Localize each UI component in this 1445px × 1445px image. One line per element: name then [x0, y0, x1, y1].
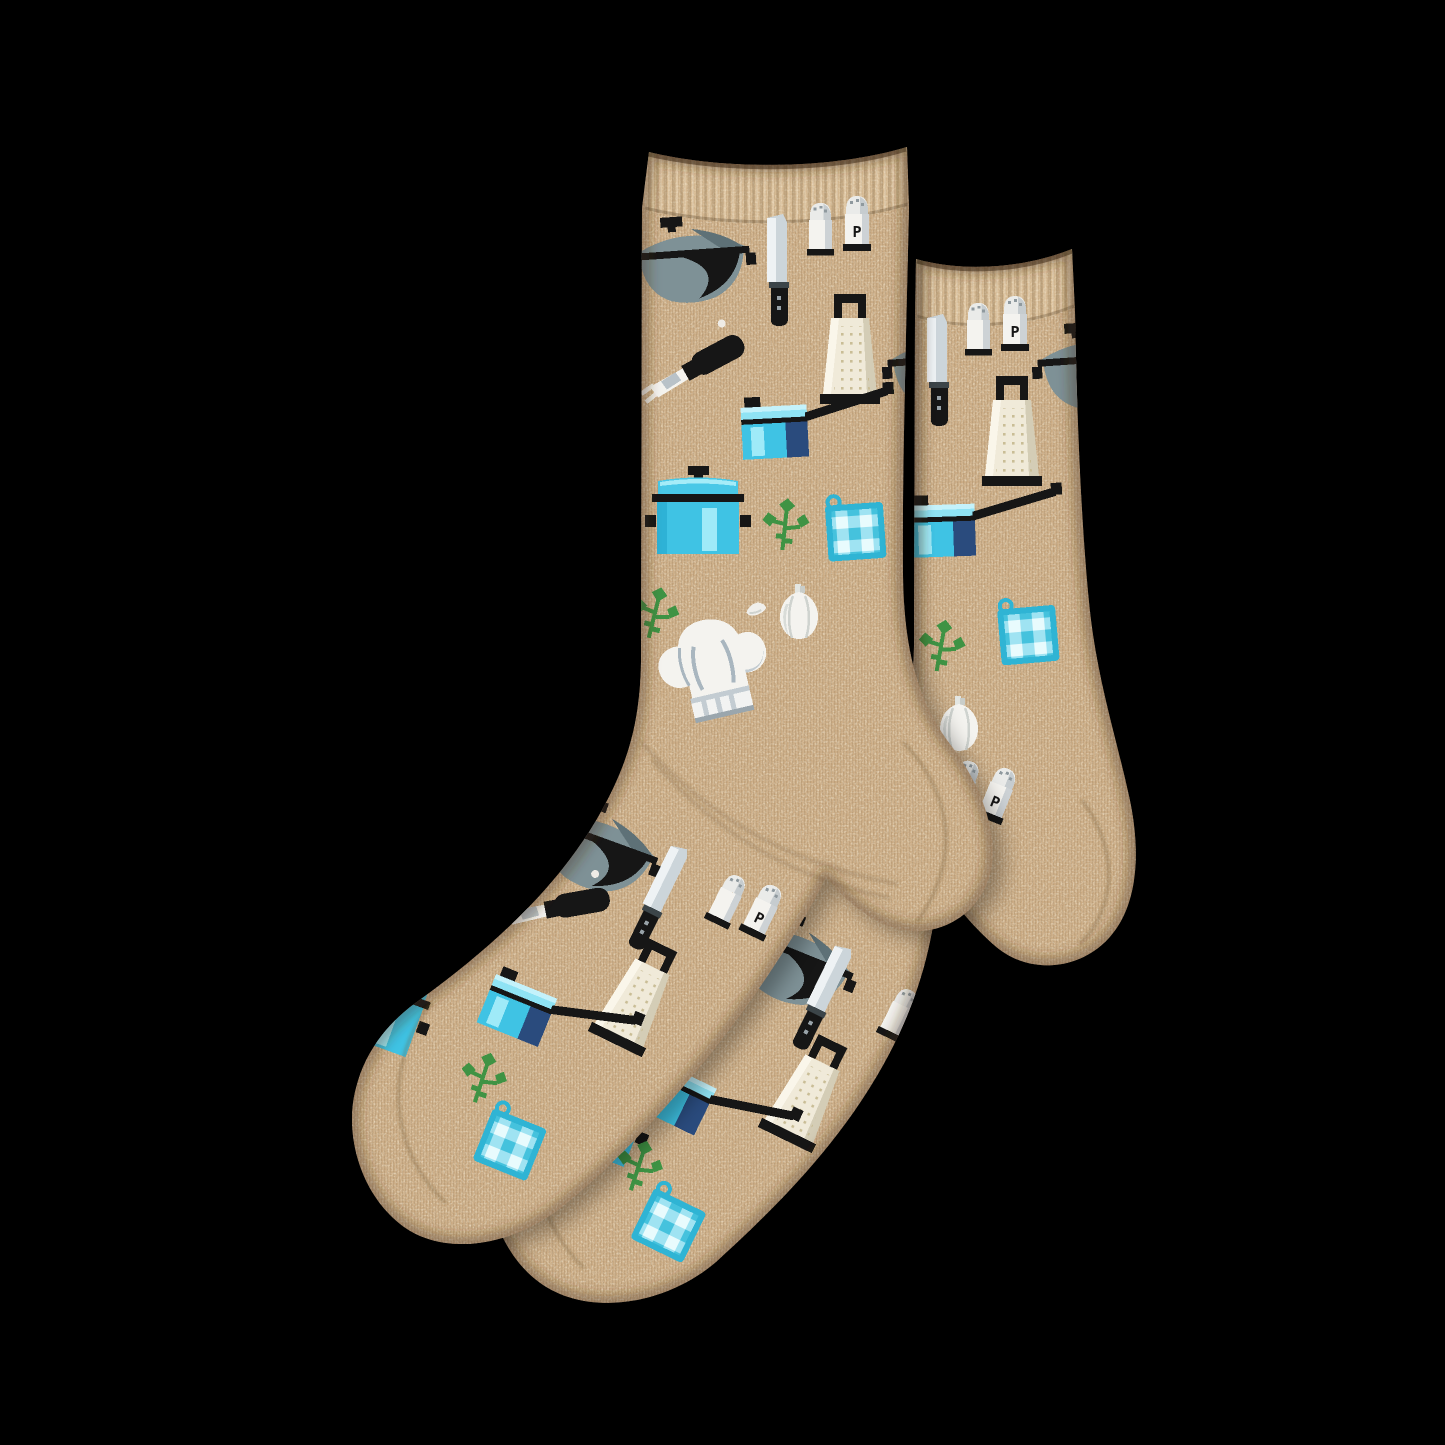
socks-illustration: P: [0, 0, 1445, 1445]
product-photo-stage: P: [0, 0, 1445, 1445]
